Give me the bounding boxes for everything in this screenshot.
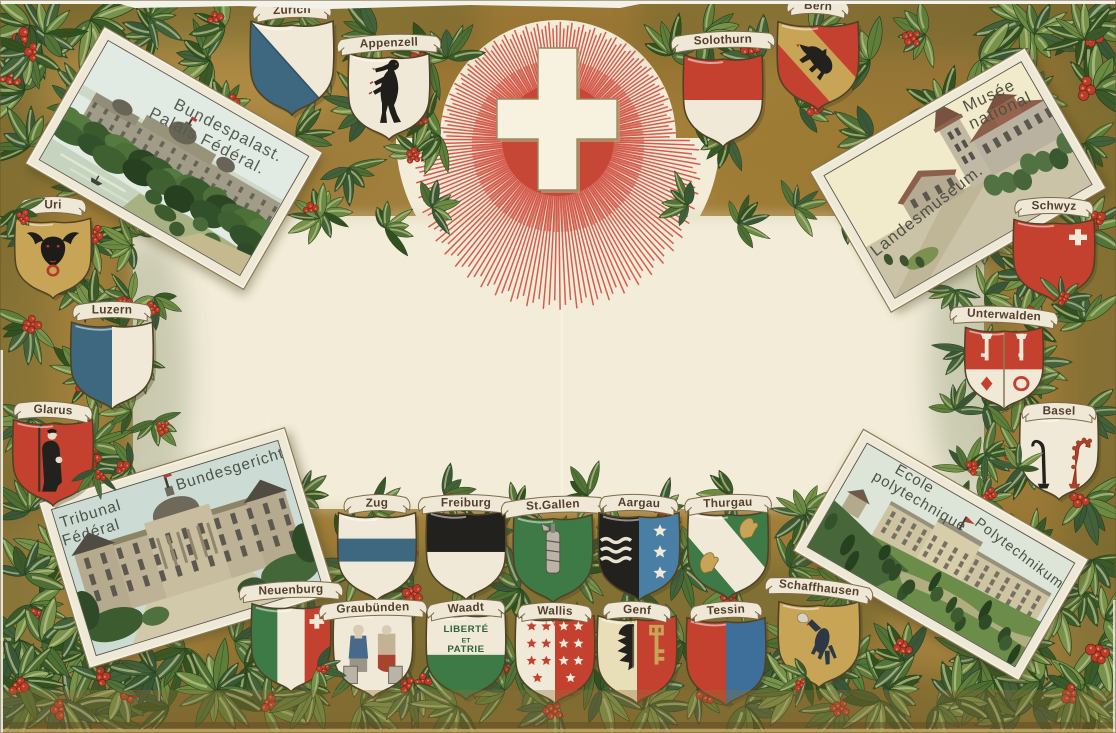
- svg-text:Basel: Basel: [1042, 403, 1075, 418]
- svg-text:Uri: Uri: [44, 198, 61, 212]
- svg-text:Tessin: Tessin: [706, 602, 745, 618]
- svg-text:Solothurn: Solothurn: [693, 31, 752, 47]
- svg-text:Appenzell: Appenzell: [359, 34, 418, 50]
- svg-text:Wallis: Wallis: [537, 603, 573, 618]
- svg-text:Luzern: Luzern: [92, 303, 132, 317]
- svg-text:Aargau: Aargau: [618, 495, 661, 510]
- svg-text:Neuenburg: Neuenburg: [258, 581, 323, 597]
- svg-text:Waadt: Waadt: [447, 600, 484, 616]
- svg-text:St.Gallen: St.Gallen: [526, 496, 581, 513]
- svg-text:Freiburg: Freiburg: [441, 496, 491, 510]
- svg-text:PATRIE: PATRIE: [447, 644, 484, 655]
- svg-text:Thurgau: Thurgau: [703, 495, 753, 511]
- svg-text:Glarus: Glarus: [33, 401, 73, 417]
- svg-text:LIBERTÉ: LIBERTÉ: [443, 624, 488, 635]
- svg-text:Genf: Genf: [623, 602, 652, 617]
- svg-text:Zug: Zug: [366, 495, 389, 509]
- svg-text:Schwyz: Schwyz: [1031, 198, 1076, 213]
- svg-text:Graubünden: Graubünden: [336, 599, 410, 616]
